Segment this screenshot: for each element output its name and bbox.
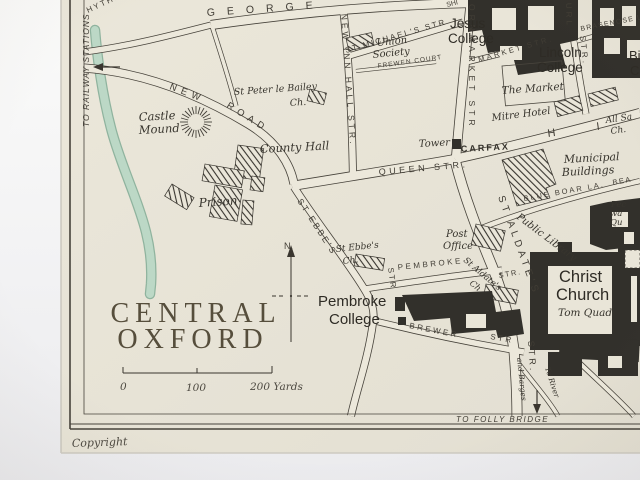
label-jesus-1: Jesus (450, 16, 486, 31)
edge-label-to-railway-stations: TO RAILWAY STATIONS (81, 13, 91, 127)
compass-label: N. (284, 241, 293, 251)
scale-two-hundred: 200 Yards (249, 381, 303, 393)
label-prison: Prison (197, 193, 238, 210)
label-post-1: Post (445, 229, 468, 240)
oxford-map-photo: N. 0 100 200 Yards GEORGE HYTHE NEW ROAD… (0, 0, 640, 480)
scale-zero: 0 (120, 381, 127, 393)
street-label-turl-top: URL (564, 3, 574, 28)
copyright-note: Copyright (72, 435, 129, 450)
edge-label-to-folly-bridge: TO FOLLY BRIDGE (456, 415, 549, 424)
label-christ-1: Christ (559, 268, 603, 286)
label-peckwater-3: Qu (610, 218, 622, 228)
label-st-peter-ch: Ch. (289, 97, 306, 109)
building-county-hall-annex (250, 176, 265, 192)
label-pembroke-1: Pembroke (318, 293, 386, 310)
building-prison-d (241, 200, 254, 225)
map-title-line2: OXFORD (117, 324, 268, 355)
building-pembroke-annex-a (395, 297, 405, 311)
label-jesus-2: College (448, 31, 494, 46)
map-svg: N. 0 100 200 Yards GEORGE HYTHE NEW ROAD… (0, 0, 640, 480)
label-pembroke-2: College (329, 311, 380, 328)
scale-hundred: 100 (186, 382, 206, 394)
label-clipped-college-1: Bi (629, 48, 640, 63)
label-tom-quad: Tom Quad (558, 307, 612, 319)
label-post-2: Office (443, 241, 473, 252)
label-lincoln-2: College (537, 60, 583, 75)
label-castle-2: Mound (137, 121, 180, 137)
building-pembroke-annex-b (398, 317, 406, 325)
label-christ-2: Church (556, 286, 609, 304)
label-st-ebbes-ch-2: Ch. (342, 255, 359, 267)
label-lincoln-1: Lincoln (539, 45, 582, 60)
dashed-quad-outline (625, 250, 640, 268)
label-tower: Tower (419, 137, 452, 150)
label-clipped-college-2: C (630, 63, 639, 78)
